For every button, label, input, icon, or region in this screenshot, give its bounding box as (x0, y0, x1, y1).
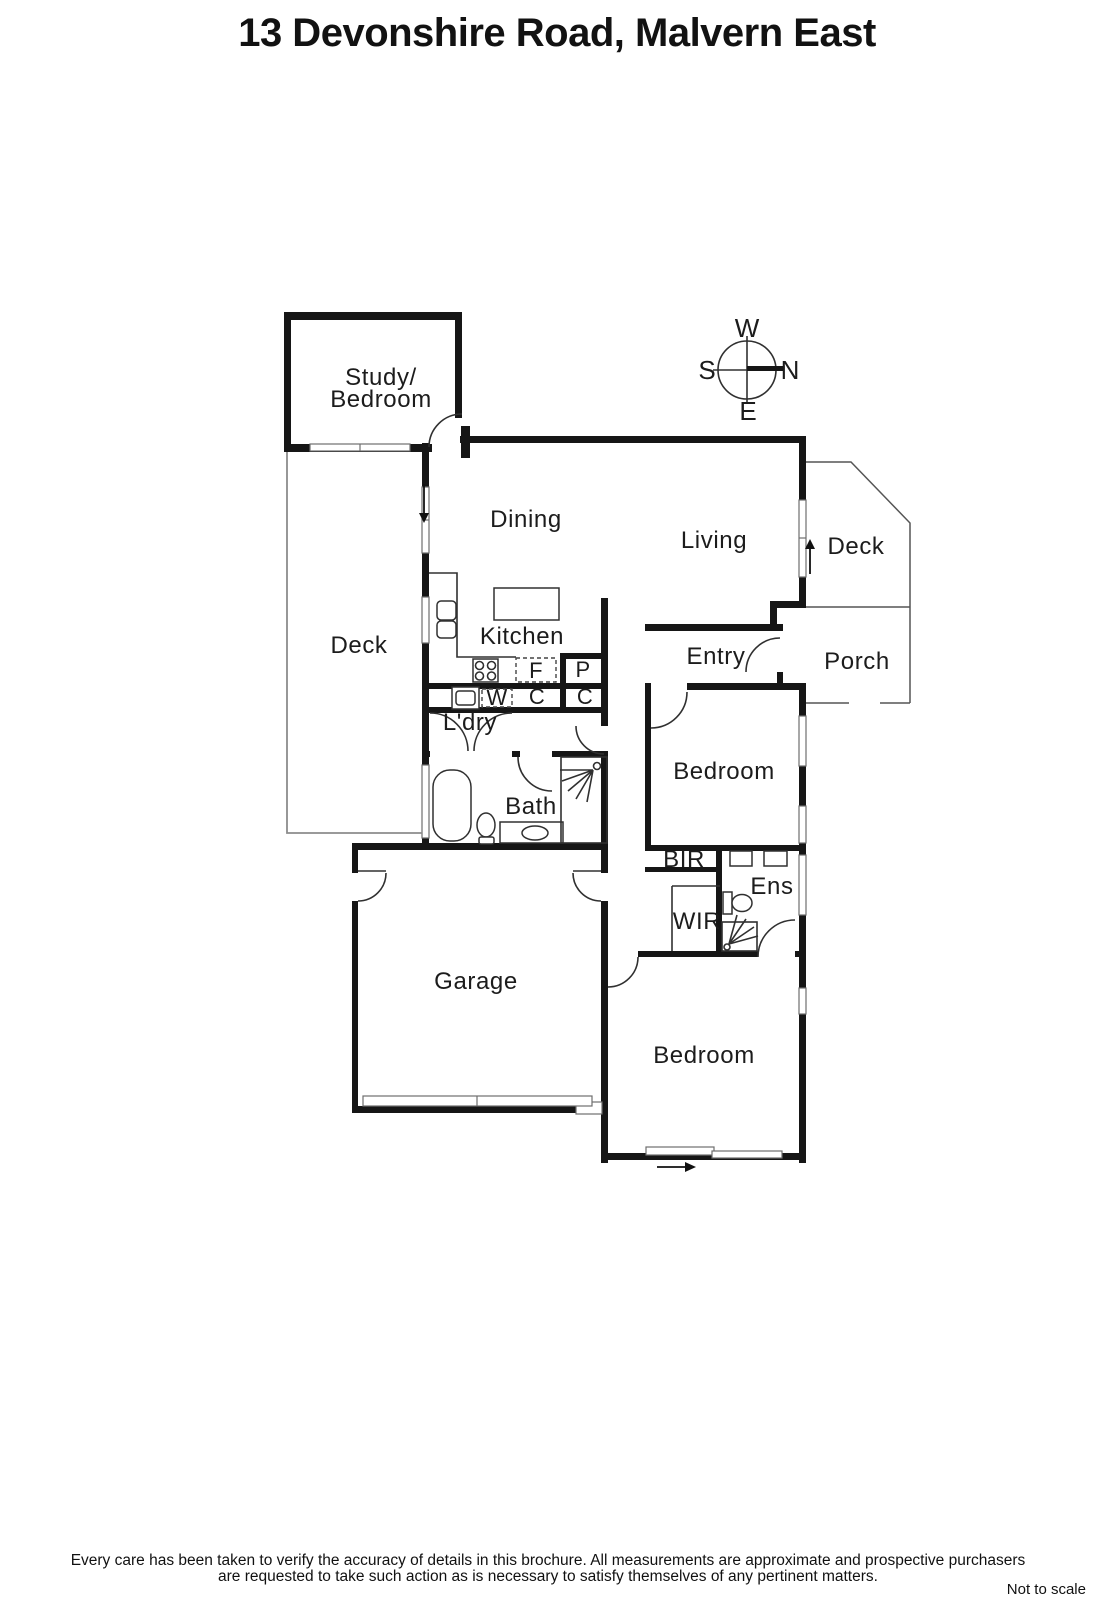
fixture-label-cupboard2: C (577, 684, 593, 709)
footer-scale-note: Not to scale (1007, 1581, 1086, 1598)
ensuite-shower (722, 915, 758, 951)
bedroom-middle-window1 (799, 716, 806, 766)
footer: Every care has been taken to verify the … (71, 1552, 1086, 1598)
room-label-study-line2: Bedroom (330, 386, 432, 413)
ensuite-window (799, 855, 806, 915)
floor-plan: W S N E 13 Devonshire Road, Malvern East… (0, 0, 1096, 1600)
bathtub (433, 770, 471, 841)
room-label-laundry: L'dry (443, 709, 497, 736)
room-label-wir: WIR (673, 908, 721, 935)
bedroom-rear-slider2 (712, 1151, 782, 1158)
kitchen-window (422, 597, 429, 643)
laundry-trough (452, 687, 479, 709)
fixture-label-cupboard1: C (529, 684, 545, 709)
ensuite-toilet (723, 892, 752, 914)
footer-disclaimer-line2: are requested to take such action as is … (218, 1568, 878, 1585)
room-label-entry: Entry (686, 643, 745, 670)
bath-window (422, 765, 429, 838)
compass-label-west: W (735, 313, 760, 343)
bedroom-middle-door-arc (651, 692, 687, 728)
room-label-living: Living (681, 527, 747, 554)
compass-label-north: N (781, 355, 800, 385)
compass-label-east: E (739, 396, 756, 426)
study-door-arc (429, 414, 462, 447)
room-label-porch: Porch (824, 648, 890, 675)
room-label-deck-right: Deck (827, 533, 884, 560)
ensuite-fixtures (722, 851, 787, 951)
compass: W S N E (698, 313, 799, 426)
stove (473, 659, 498, 682)
hall-door-arc (576, 726, 604, 754)
room-label-bedroom-rear: Bedroom (653, 1042, 755, 1069)
fixture-label-washer: W (486, 685, 507, 710)
garage-door-arc-left (358, 873, 386, 901)
compass-north-pointer (747, 366, 784, 371)
island-bench (494, 588, 559, 620)
ensuite-door-arc (758, 920, 795, 957)
bedroom-rear-slider1 (646, 1147, 714, 1155)
front-door-arc (746, 638, 780, 672)
room-label-garage: Garage (434, 968, 518, 995)
room-label-dining: Dining (490, 506, 562, 533)
ensuite-vanity1 (730, 851, 752, 866)
bedroom-rear-door-arc (608, 957, 638, 987)
garage-door-panel (363, 1096, 592, 1106)
room-label-kitchen: Kitchen (480, 623, 564, 650)
shower (560, 757, 607, 843)
footer-disclaimer-line1: Every care has been taken to verify the … (71, 1552, 1026, 1569)
bath-vanity (500, 822, 563, 843)
room-label-bedroom-middle: Bedroom (673, 758, 775, 785)
toilet (477, 813, 495, 844)
bedroom-rear-window (799, 988, 806, 1014)
floorplan-page: W S N E 13 Devonshire Road, Malvern East… (0, 0, 1096, 1600)
room-label-bath: Bath (505, 793, 557, 820)
fixture-label-pantry: P (575, 657, 590, 682)
arrow-right-icon (657, 1162, 696, 1172)
room-label-ensuite: Ens (750, 873, 793, 900)
room-label-deck-left: Deck (330, 632, 387, 659)
ensuite-vanity2 (764, 851, 787, 866)
bedroom-middle-window2 (799, 806, 806, 843)
bath-door-arc (518, 757, 552, 791)
compass-label-south: S (698, 355, 715, 385)
kitchen-sink (437, 601, 456, 620)
fixture-label-fridge: F (529, 658, 543, 683)
page-title: 13 Devonshire Road, Malvern East (238, 11, 876, 55)
room-label-bir: BIR (663, 846, 705, 873)
garage-door-arc-right (573, 873, 601, 901)
walls (284, 312, 806, 1163)
